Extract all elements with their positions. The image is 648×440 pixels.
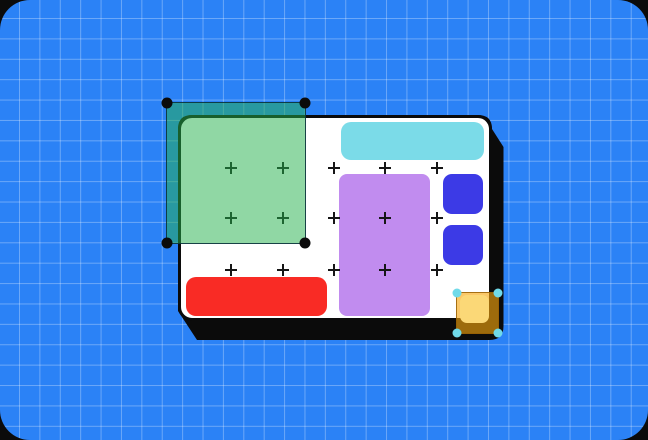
- corner-handle-icon[interactable]: [300, 98, 311, 109]
- corner-handle-icon[interactable]: [453, 329, 462, 338]
- plus-mark-icon: [379, 162, 391, 174]
- corner-handle-icon[interactable]: [300, 238, 311, 249]
- plus-mark-icon: [379, 264, 391, 276]
- design-canvas[interactable]: [0, 0, 648, 440]
- corner-handle-icon[interactable]: [162, 238, 173, 249]
- green-selection-box[interactable]: [166, 102, 306, 244]
- plus-mark-icon: [328, 212, 340, 224]
- plus-marks-layer: [0, 0, 648, 440]
- plus-mark-icon: [328, 264, 340, 276]
- corner-handle-icon[interactable]: [453, 289, 462, 298]
- plus-mark-icon: [431, 162, 443, 174]
- corner-handle-icon[interactable]: [494, 329, 503, 338]
- plus-mark-icon: [431, 212, 443, 224]
- yellow-sticker-shape[interactable]: [460, 295, 489, 323]
- plus-mark-icon: [431, 264, 443, 276]
- corner-handle-icon[interactable]: [162, 98, 173, 109]
- plus-mark-icon: [225, 264, 237, 276]
- orange-selection-box[interactable]: [456, 292, 499, 334]
- plus-mark-icon: [379, 212, 391, 224]
- plus-mark-icon: [277, 264, 289, 276]
- plus-mark-icon: [328, 162, 340, 174]
- corner-handle-icon[interactable]: [494, 289, 503, 298]
